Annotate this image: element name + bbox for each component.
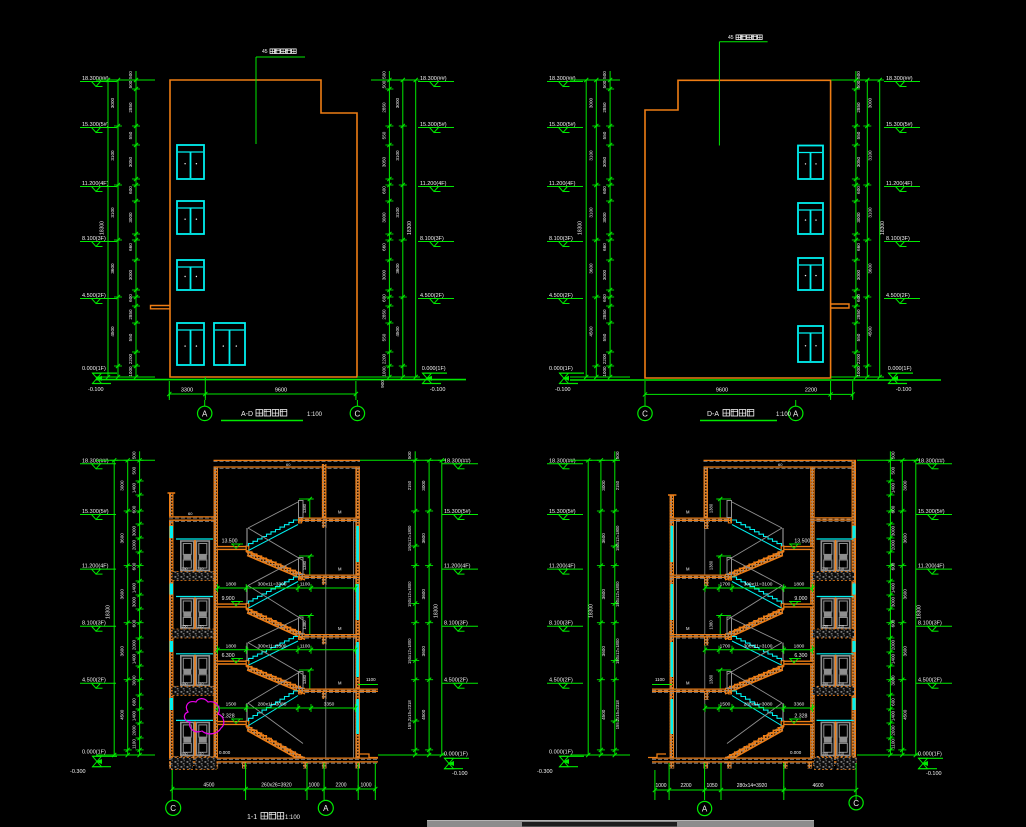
svg-text:18300: 18300: [100, 221, 106, 235]
svg-text:3100: 3100: [110, 207, 115, 218]
svg-text:1800: 1800: [794, 643, 805, 649]
svg-text:1:100: 1:100: [285, 815, 301, 821]
svg-text:1380: 1380: [302, 620, 307, 630]
svg-text:2200: 2200: [856, 353, 861, 364]
svg-text:9600: 9600: [716, 388, 728, 394]
svg-text:3000: 3000: [110, 97, 115, 108]
svg-text:150x12=1800: 150x12=1800: [407, 638, 412, 664]
svg-text:C: C: [853, 799, 859, 808]
svg-text:2850: 2850: [856, 309, 861, 320]
svg-text:3000: 3000: [421, 480, 426, 491]
svg-text:-0.100: -0.100: [430, 387, 446, 393]
svg-text:3000: 3000: [381, 212, 386, 223]
svg-text:M: M: [338, 626, 342, 631]
svg-text:3350: 3350: [324, 702, 335, 708]
svg-text:1400: 1400: [132, 710, 137, 721]
svg-text:4500: 4500: [867, 326, 872, 337]
svg-text:3050: 3050: [128, 156, 133, 167]
svg-text:4500: 4500: [110, 326, 115, 337]
svg-text:3000: 3000: [856, 212, 861, 223]
svg-text:500: 500: [890, 466, 895, 474]
svg-text:350: 350: [822, 567, 828, 571]
svg-text:1380: 1380: [709, 620, 714, 630]
svg-text:A: A: [323, 804, 329, 813]
svg-text:3000: 3000: [132, 525, 137, 536]
svg-text:1:100: 1:100: [307, 412, 323, 418]
svg-text:280x11=3080: 280x11=3080: [744, 702, 773, 708]
svg-text:2200: 2200: [680, 783, 691, 789]
svg-text:310: 310: [198, 682, 204, 686]
svg-text:2150: 2150: [615, 480, 620, 490]
svg-text:300x11=3300: 300x11=3300: [258, 582, 287, 588]
svg-text:3600: 3600: [110, 263, 115, 274]
svg-text:600: 600: [381, 294, 386, 302]
svg-text:310: 310: [198, 752, 204, 756]
svg-text:3000: 3000: [395, 97, 400, 108]
svg-text:1100: 1100: [132, 739, 137, 749]
svg-text:1100: 1100: [655, 677, 665, 682]
svg-text:D-A: D-A: [707, 411, 719, 418]
svg-text:1100: 1100: [300, 582, 311, 588]
svg-text:0.000(1F): 0.000(1F): [444, 752, 468, 758]
svg-text:0.000(1F): 0.000(1F): [549, 366, 573, 372]
svg-text:600: 600: [890, 505, 895, 513]
svg-text:3100: 3100: [867, 207, 872, 218]
svg-text:3100: 3100: [110, 150, 115, 161]
svg-text:3000: 3000: [856, 269, 861, 280]
svg-text:550: 550: [602, 333, 607, 341]
svg-text:-0.100: -0.100: [88, 387, 104, 393]
svg-text:3600: 3600: [421, 646, 426, 657]
svg-text:M: M: [338, 681, 342, 686]
svg-text:155.2x15=2318: 155.2x15=2318: [407, 700, 412, 730]
svg-text:660: 660: [128, 243, 133, 251]
svg-text:500: 500: [890, 451, 895, 459]
svg-text:3100: 3100: [588, 207, 593, 218]
svg-text:310: 310: [198, 567, 204, 571]
svg-text:1500: 1500: [226, 702, 237, 708]
svg-text:600: 600: [132, 505, 137, 513]
svg-text:150x12=1800: 150x12=1800: [407, 525, 412, 551]
svg-text:600: 600: [890, 562, 895, 570]
svg-text:3300: 3300: [181, 388, 193, 394]
svg-text:600: 600: [128, 294, 133, 302]
svg-text:500: 500: [602, 71, 607, 79]
svg-text:M: M: [338, 510, 342, 515]
svg-text:350: 350: [822, 752, 828, 756]
svg-text:C: C: [355, 409, 361, 418]
svg-text:3600: 3600: [120, 589, 125, 600]
svg-text:1000: 1000: [856, 366, 861, 377]
svg-text:M: M: [686, 626, 690, 631]
svg-text:2000: 2000: [890, 539, 895, 550]
svg-text:2000: 2000: [890, 639, 895, 650]
svg-text:600: 600: [890, 698, 895, 706]
svg-text:3600: 3600: [421, 589, 426, 600]
svg-text:3000: 3000: [890, 675, 895, 686]
svg-text:-0.300: -0.300: [70, 769, 86, 775]
svg-text:0.000: 0.000: [219, 750, 231, 755]
svg-text:310: 310: [198, 625, 204, 629]
svg-text:-0.100: -0.100: [896, 387, 912, 393]
svg-text:155.2x15=2318: 155.2x15=2318: [615, 700, 620, 730]
svg-text:600: 600: [602, 294, 607, 302]
svg-text:2150: 2150: [407, 480, 412, 490]
svg-text:1400: 1400: [132, 482, 137, 493]
svg-text:280x14=3920: 280x14=3920: [737, 783, 768, 789]
svg-text:0.000(1F): 0.000(1F): [549, 750, 573, 756]
svg-text:3600: 3600: [395, 263, 400, 274]
svg-text:350: 350: [822, 625, 828, 629]
svg-text:2850: 2850: [602, 309, 607, 320]
svg-text:600: 600: [132, 698, 137, 706]
svg-text:3600: 3600: [588, 263, 593, 274]
svg-text:3000: 3000: [132, 675, 137, 686]
svg-text:4500: 4500: [203, 783, 214, 789]
svg-text:260x26=3920: 260x26=3920: [261, 783, 292, 789]
svg-text:4500: 4500: [421, 709, 426, 720]
svg-text:1500: 1500: [720, 702, 731, 708]
svg-text:600: 600: [132, 619, 137, 627]
svg-text:350: 350: [182, 567, 188, 571]
svg-text:2200: 2200: [602, 353, 607, 364]
svg-text:660: 660: [602, 243, 607, 251]
svg-text:3050: 3050: [856, 156, 861, 167]
svg-text:550: 550: [856, 131, 861, 139]
svg-text:660: 660: [381, 243, 386, 251]
svg-text:0.000(1F): 0.000(1F): [888, 366, 912, 372]
svg-text:1380: 1380: [709, 674, 714, 684]
svg-text:1380: 1380: [302, 503, 307, 513]
svg-text:-0.100: -0.100: [926, 771, 942, 777]
svg-text:2850: 2850: [602, 102, 607, 113]
svg-text:18300: 18300: [880, 221, 886, 235]
svg-text:600: 600: [890, 619, 895, 627]
svg-text:A: A: [702, 805, 708, 814]
svg-text:1000: 1000: [655, 783, 666, 789]
svg-text:3000: 3000: [890, 596, 895, 607]
svg-text:300x11=3300: 300x11=3300: [258, 643, 287, 649]
svg-text:4600: 4600: [812, 783, 823, 789]
svg-text:1100: 1100: [366, 677, 376, 682]
svg-text:1000: 1000: [128, 366, 133, 377]
svg-text:3600: 3600: [601, 646, 606, 657]
svg-text:-0.100: -0.100: [452, 771, 468, 777]
svg-text:4500: 4500: [902, 709, 907, 720]
svg-text:3000: 3000: [381, 269, 386, 280]
svg-text:300x11=3100: 300x11=3100: [744, 582, 773, 588]
svg-text:3600: 3600: [120, 533, 125, 544]
svg-text:600: 600: [381, 186, 386, 194]
svg-text:4500: 4500: [395, 326, 400, 337]
svg-text:500: 500: [128, 71, 133, 79]
svg-text:1400: 1400: [132, 653, 137, 664]
svg-text:1100: 1100: [300, 643, 311, 649]
svg-text:1400: 1400: [890, 482, 895, 493]
svg-text:1700: 1700: [720, 582, 731, 588]
svg-text:-0.100: -0.100: [555, 387, 571, 393]
svg-text:500: 500: [856, 80, 861, 88]
svg-text:1400: 1400: [890, 653, 895, 664]
svg-text:280x11=3080: 280x11=3080: [258, 702, 287, 708]
svg-text:0.000(1F): 0.000(1F): [82, 366, 106, 372]
svg-text:2000: 2000: [132, 539, 137, 550]
svg-text:2850: 2850: [381, 309, 386, 320]
svg-text:3600: 3600: [902, 589, 907, 600]
svg-text:3000: 3000: [120, 480, 125, 491]
svg-text:1100: 1100: [890, 739, 895, 749]
svg-text:550: 550: [381, 131, 386, 139]
svg-text:2850: 2850: [128, 102, 133, 113]
svg-text:500: 500: [132, 466, 137, 474]
svg-text:350: 350: [182, 682, 188, 686]
svg-text:2850: 2850: [128, 309, 133, 320]
svg-text:3600: 3600: [601, 589, 606, 600]
svg-text:9600: 9600: [275, 388, 287, 394]
svg-text:300x11=3100: 300x11=3100: [744, 643, 773, 649]
svg-text:900: 900: [380, 380, 385, 388]
svg-text:500: 500: [602, 80, 607, 88]
svg-text:3000: 3000: [602, 269, 607, 280]
svg-text:310: 310: [838, 625, 844, 629]
svg-text:2000: 2000: [890, 725, 895, 736]
svg-text:150x12=1800: 150x12=1800: [615, 525, 620, 551]
svg-text:2200: 2200: [805, 388, 817, 394]
svg-text:2200: 2200: [335, 783, 346, 789]
svg-text:500: 500: [128, 80, 133, 88]
svg-text:1050: 1050: [706, 783, 717, 789]
svg-text:3600: 3600: [902, 646, 907, 657]
svg-text:2850: 2850: [381, 102, 386, 113]
svg-text:18300: 18300: [106, 605, 112, 619]
svg-text:350: 350: [182, 752, 188, 756]
svg-text:3050: 3050: [381, 156, 386, 167]
svg-text:1400: 1400: [890, 710, 895, 721]
svg-text:1800: 1800: [226, 643, 237, 649]
svg-text:1400: 1400: [132, 582, 137, 593]
svg-text:1800: 1800: [794, 582, 805, 588]
svg-text:C: C: [642, 409, 648, 418]
svg-text:3000: 3000: [902, 480, 907, 491]
svg-text:M: M: [686, 681, 690, 686]
svg-text:3000: 3000: [601, 480, 606, 491]
svg-text:2850: 2850: [856, 102, 861, 113]
svg-text:3000: 3000: [890, 525, 895, 536]
svg-text:3000: 3000: [867, 97, 872, 108]
svg-text:C: C: [170, 804, 176, 813]
svg-text:18300: 18300: [578, 221, 584, 235]
svg-text:1000: 1000: [381, 366, 386, 377]
svg-text:500: 500: [381, 80, 386, 88]
svg-text:18300: 18300: [916, 605, 922, 619]
svg-text:1000: 1000: [360, 783, 371, 789]
svg-text:18300: 18300: [433, 604, 439, 618]
svg-text:2000: 2000: [132, 639, 137, 650]
svg-text:2200: 2200: [381, 353, 386, 364]
svg-text:-0.300: -0.300: [537, 769, 553, 775]
svg-text:M: M: [338, 567, 342, 572]
svg-text:3000: 3000: [602, 212, 607, 223]
svg-text:500: 500: [407, 451, 412, 459]
svg-text:500: 500: [856, 71, 861, 79]
svg-text:1:100: 1:100: [776, 412, 792, 418]
svg-text:1000: 1000: [308, 783, 319, 789]
svg-text:600: 600: [128, 186, 133, 194]
svg-text:1700: 1700: [720, 643, 731, 649]
svg-text:310: 310: [838, 682, 844, 686]
svg-text:1380: 1380: [302, 560, 307, 570]
svg-text:3600: 3600: [601, 533, 606, 544]
svg-text:150x12=1800: 150x12=1800: [615, 638, 620, 664]
svg-text:150x12=1800: 150x12=1800: [407, 581, 412, 607]
svg-text:500: 500: [132, 451, 137, 459]
svg-text:310: 310: [838, 567, 844, 571]
svg-text:600: 600: [132, 562, 137, 570]
svg-text:2200: 2200: [128, 353, 133, 364]
svg-text:550: 550: [856, 333, 861, 341]
svg-text:18300: 18300: [589, 604, 595, 618]
svg-text:3000: 3000: [132, 596, 137, 607]
svg-text:60: 60: [188, 511, 193, 516]
svg-text:1800: 1800: [226, 582, 237, 588]
svg-text:45: 45: [728, 35, 734, 41]
svg-text:550: 550: [128, 333, 133, 341]
svg-text:A: A: [202, 409, 208, 418]
svg-text:1380: 1380: [709, 560, 714, 570]
svg-text:1380: 1380: [709, 503, 714, 513]
svg-text:60: 60: [778, 462, 783, 467]
svg-text:M: M: [686, 510, 690, 515]
svg-text:4500: 4500: [588, 326, 593, 337]
svg-text:3600: 3600: [120, 646, 125, 657]
svg-text:3600: 3600: [902, 533, 907, 544]
svg-text:3000: 3000: [588, 97, 593, 108]
svg-text:3100: 3100: [395, 150, 400, 161]
svg-text:550: 550: [602, 131, 607, 139]
svg-text:M: M: [686, 567, 690, 572]
svg-text:4500: 4500: [601, 709, 606, 720]
svg-text:600: 600: [856, 294, 861, 302]
svg-text:500: 500: [381, 71, 386, 79]
svg-text:3050: 3050: [602, 156, 607, 167]
svg-text:350: 350: [822, 682, 828, 686]
svg-text:0.000(1F): 0.000(1F): [422, 366, 446, 372]
svg-text:3600: 3600: [867, 263, 872, 274]
svg-text:3600: 3600: [421, 533, 426, 544]
svg-text:3000: 3000: [128, 269, 133, 280]
svg-text:1400: 1400: [890, 582, 895, 593]
svg-text:A-D: A-D: [241, 411, 253, 418]
svg-text:310: 310: [838, 752, 844, 756]
svg-text:0.000(1F): 0.000(1F): [918, 752, 942, 758]
svg-text:350: 350: [182, 625, 188, 629]
svg-text:45: 45: [262, 49, 268, 55]
svg-text:3100: 3100: [588, 150, 593, 161]
svg-text:500: 500: [615, 451, 620, 459]
svg-text:600: 600: [856, 186, 861, 194]
svg-text:18300: 18300: [407, 221, 413, 235]
svg-text:1380: 1380: [302, 674, 307, 684]
svg-text:3360: 3360: [794, 702, 805, 708]
svg-text:A: A: [793, 409, 799, 418]
svg-text:60: 60: [286, 462, 291, 467]
svg-text:3100: 3100: [867, 150, 872, 161]
svg-text:150x12=1800: 150x12=1800: [615, 581, 620, 607]
svg-text:4500: 4500: [120, 709, 125, 720]
svg-text:550: 550: [128, 131, 133, 139]
svg-text:2000: 2000: [132, 725, 137, 736]
svg-text:660: 660: [856, 243, 861, 251]
svg-text:600: 600: [602, 186, 607, 194]
svg-text:0.000: 0.000: [790, 750, 802, 755]
svg-text:1000: 1000: [602, 366, 607, 377]
svg-text:3000: 3000: [128, 212, 133, 223]
svg-text:3100: 3100: [395, 207, 400, 218]
svg-text:1-1: 1-1: [247, 814, 257, 821]
svg-text:550: 550: [381, 333, 386, 341]
